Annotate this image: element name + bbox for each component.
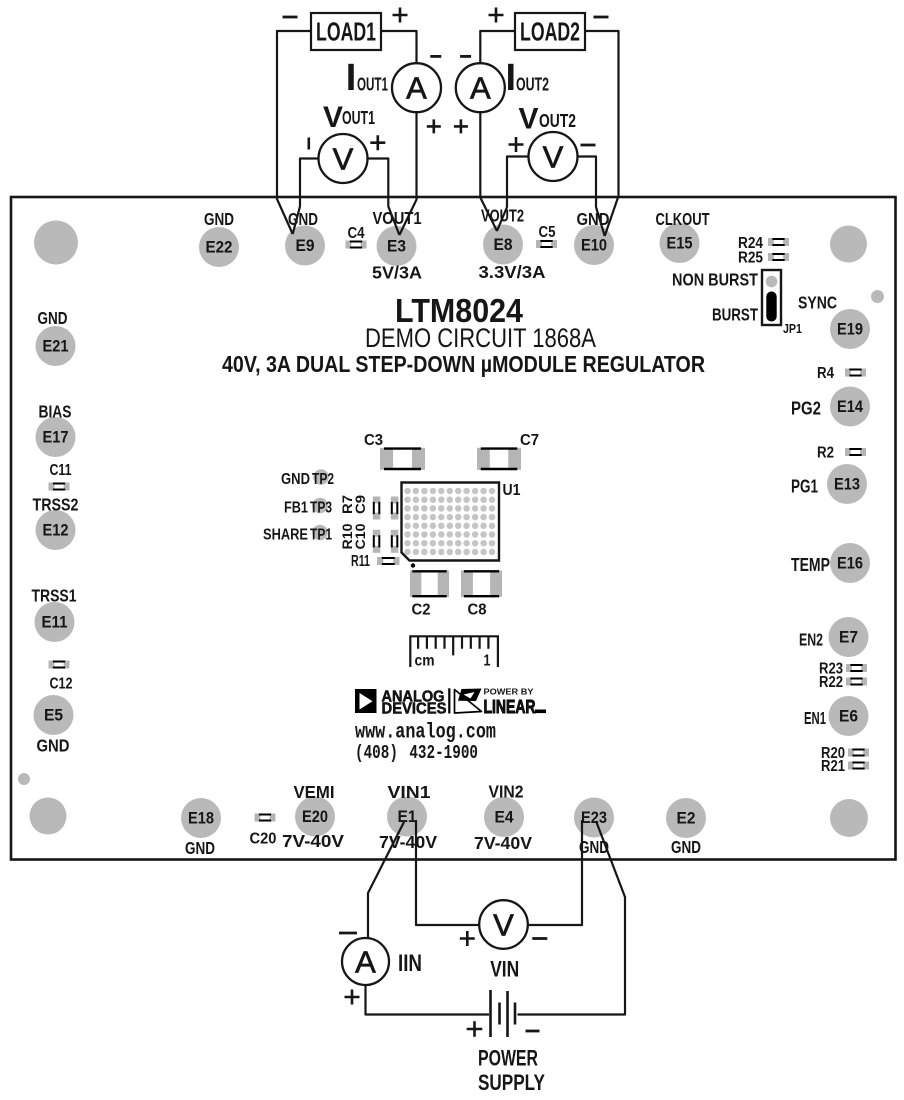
svg-text:SYNC: SYNC	[798, 293, 837, 313]
svg-text:V: V	[543, 140, 564, 175]
svg-text:PG2: PG2	[791, 399, 821, 419]
svg-text:40V, 3A DUAL STEP-DOWN µMODULE: 40V, 3A DUAL STEP-DOWN µMODULE REGULATOR	[222, 351, 705, 377]
svg-text:1: 1	[484, 653, 491, 670]
svg-text:E19: E19	[837, 321, 863, 339]
svg-text:TRSS1: TRSS1	[32, 586, 77, 606]
svg-text:A: A	[406, 71, 427, 106]
svg-text:POWER: POWER	[478, 1046, 538, 1071]
svg-text:E23: E23	[581, 809, 607, 827]
svg-text:E16: E16	[837, 555, 863, 573]
svg-text:JP1: JP1	[783, 321, 802, 336]
svg-text:E6: E6	[839, 708, 858, 726]
svg-text:7V-40V: 7V-40V	[474, 833, 532, 853]
svg-text:VIN: VIN	[490, 957, 519, 982]
svg-text:IIN: IIN	[398, 950, 422, 977]
svg-text:VIN2: VIN2	[489, 782, 524, 802]
svg-text:E17: E17	[43, 429, 69, 447]
svg-text:OUT2: OUT2	[539, 111, 576, 131]
svg-text:E18: E18	[188, 810, 214, 828]
svg-text:U1: U1	[503, 482, 521, 499]
svg-text:C10: C10	[352, 523, 368, 549]
svg-text:VIN1: VIN1	[388, 782, 431, 802]
svg-text:VOUT1: VOUT1	[373, 208, 422, 228]
svg-text:LINEAR: LINEAR	[484, 697, 536, 717]
svg-text:GND: GND	[38, 308, 68, 328]
svg-text:E7: E7	[839, 629, 858, 647]
svg-text:R11: R11	[351, 553, 370, 570]
svg-text:LOAD2: LOAD2	[520, 17, 580, 47]
svg-text:C12: C12	[50, 676, 73, 693]
svg-text:CLKOUT: CLKOUT	[656, 209, 710, 229]
svg-text:BIAS: BIAS	[39, 402, 72, 422]
svg-text:C3: C3	[364, 432, 383, 449]
svg-text:R25: R25	[738, 250, 763, 267]
svg-text:E5: E5	[44, 707, 63, 725]
svg-text:cm: cm	[415, 653, 435, 670]
svg-text:TP3: TP3	[310, 500, 332, 517]
svg-text:E4: E4	[495, 809, 515, 827]
svg-text:A: A	[470, 71, 491, 106]
svg-text:V: V	[493, 908, 514, 943]
svg-text:PG1: PG1	[791, 477, 818, 497]
svg-text:E14: E14	[837, 398, 864, 416]
svg-text:E20: E20	[302, 808, 328, 826]
svg-text:E1: E1	[398, 808, 417, 826]
svg-text:SUPPLY: SUPPLY	[478, 1070, 545, 1095]
svg-text:TP1: TP1	[310, 527, 332, 544]
svg-text:TP2: TP2	[312, 471, 334, 488]
svg-text:OUT1: OUT1	[342, 108, 375, 128]
svg-text:I: I	[506, 57, 517, 99]
svg-text:E9: E9	[296, 237, 315, 255]
svg-text:A: A	[355, 945, 376, 980]
svg-text:GND: GND	[204, 209, 234, 229]
svg-text:GND: GND	[671, 837, 701, 857]
svg-text:FB1: FB1	[284, 500, 308, 517]
svg-text:V: V	[323, 101, 343, 134]
svg-text:NON BURST: NON BURST	[672, 270, 758, 290]
svg-text:GND: GND	[185, 838, 215, 858]
svg-text:E21: E21	[43, 338, 69, 356]
svg-text:OUT2: OUT2	[516, 75, 549, 95]
svg-text:SHARE: SHARE	[263, 527, 308, 544]
svg-text:E8: E8	[494, 236, 513, 254]
svg-text:C20: C20	[250, 831, 277, 848]
svg-text:E10: E10	[581, 237, 607, 255]
svg-text:V: V	[518, 103, 538, 136]
svg-text:TRSS2: TRSS2	[33, 495, 79, 515]
svg-text:E3: E3	[387, 238, 406, 256]
svg-text:(408) 432-1900: (408) 432-1900	[355, 742, 478, 764]
svg-text:DEMO CIRCUIT 1868A: DEMO CIRCUIT 1868A	[365, 323, 596, 353]
svg-text:GND: GND	[37, 736, 70, 756]
svg-text:R21: R21	[821, 758, 845, 775]
svg-text:R22: R22	[819, 674, 843, 691]
svg-text:TEMP: TEMP	[791, 555, 830, 575]
svg-text:C11: C11	[50, 462, 72, 479]
svg-text:LOAD1: LOAD1	[316, 17, 376, 47]
svg-text:EN2: EN2	[799, 630, 823, 650]
svg-text:EN1: EN1	[804, 708, 826, 728]
svg-text:GND: GND	[288, 209, 318, 229]
svg-text:7V-40V: 7V-40V	[379, 832, 437, 852]
svg-text:VEMI: VEMI	[294, 782, 335, 802]
svg-text:R4: R4	[817, 365, 834, 382]
svg-text:E12: E12	[43, 522, 69, 540]
svg-text:5V/3A: 5V/3A	[372, 263, 422, 283]
svg-text:BURST: BURST	[712, 305, 758, 325]
svg-text:E11: E11	[42, 614, 68, 632]
svg-text:POWER BY: POWER BY	[484, 688, 535, 697]
svg-text:DEVICES: DEVICES	[382, 701, 447, 718]
svg-text:C4: C4	[348, 225, 365, 242]
svg-text:3.3V/3A: 3.3V/3A	[479, 262, 546, 282]
svg-text:E22: E22	[206, 239, 233, 257]
svg-text:GND: GND	[579, 837, 609, 857]
svg-text:E2: E2	[677, 810, 696, 828]
svg-text:V: V	[333, 142, 354, 177]
svg-text:R2: R2	[817, 445, 834, 462]
svg-text:I: I	[346, 57, 357, 99]
svg-text:C7: C7	[520, 432, 539, 449]
svg-text:OUT1: OUT1	[357, 75, 388, 95]
svg-text:C9: C9	[352, 495, 368, 514]
svg-text:C8: C8	[468, 602, 487, 619]
svg-text:GND: GND	[281, 471, 310, 488]
svg-text:C2: C2	[412, 602, 431, 619]
svg-text:7V-40V: 7V-40V	[282, 831, 344, 851]
svg-text:GND: GND	[577, 209, 610, 229]
svg-text:E13: E13	[834, 476, 860, 494]
svg-text:E15: E15	[667, 235, 693, 253]
svg-text:C5: C5	[539, 224, 556, 241]
